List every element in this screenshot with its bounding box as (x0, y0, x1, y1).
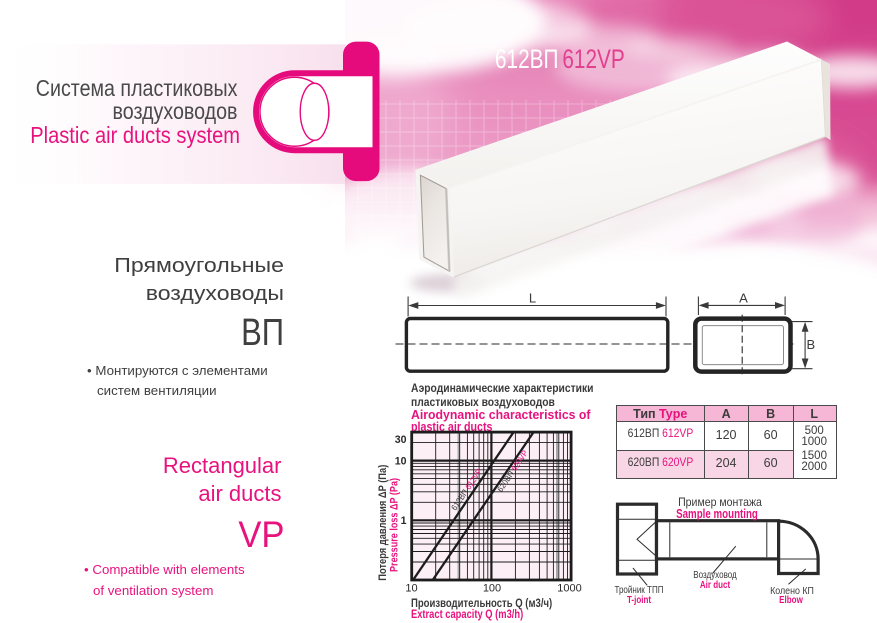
svg-text:10: 10 (395, 456, 407, 468)
svg-text:1000: 1000 (557, 583, 581, 595)
svg-text:Потеря давления ΔP (Па): Потеря давления ΔP (Па) (377, 464, 389, 580)
svg-text:L: L (529, 291, 536, 306)
svg-text:B: B (807, 337, 816, 352)
svg-text:Pressure loss ΔP (Pa): Pressure loss ΔP (Pa) (389, 478, 401, 572)
svg-text:100: 100 (483, 583, 501, 595)
svg-text:1: 1 (401, 515, 407, 527)
svg-text:30: 30 (395, 434, 407, 446)
svg-text:10: 10 (405, 583, 417, 595)
svg-text:A: A (739, 291, 748, 306)
